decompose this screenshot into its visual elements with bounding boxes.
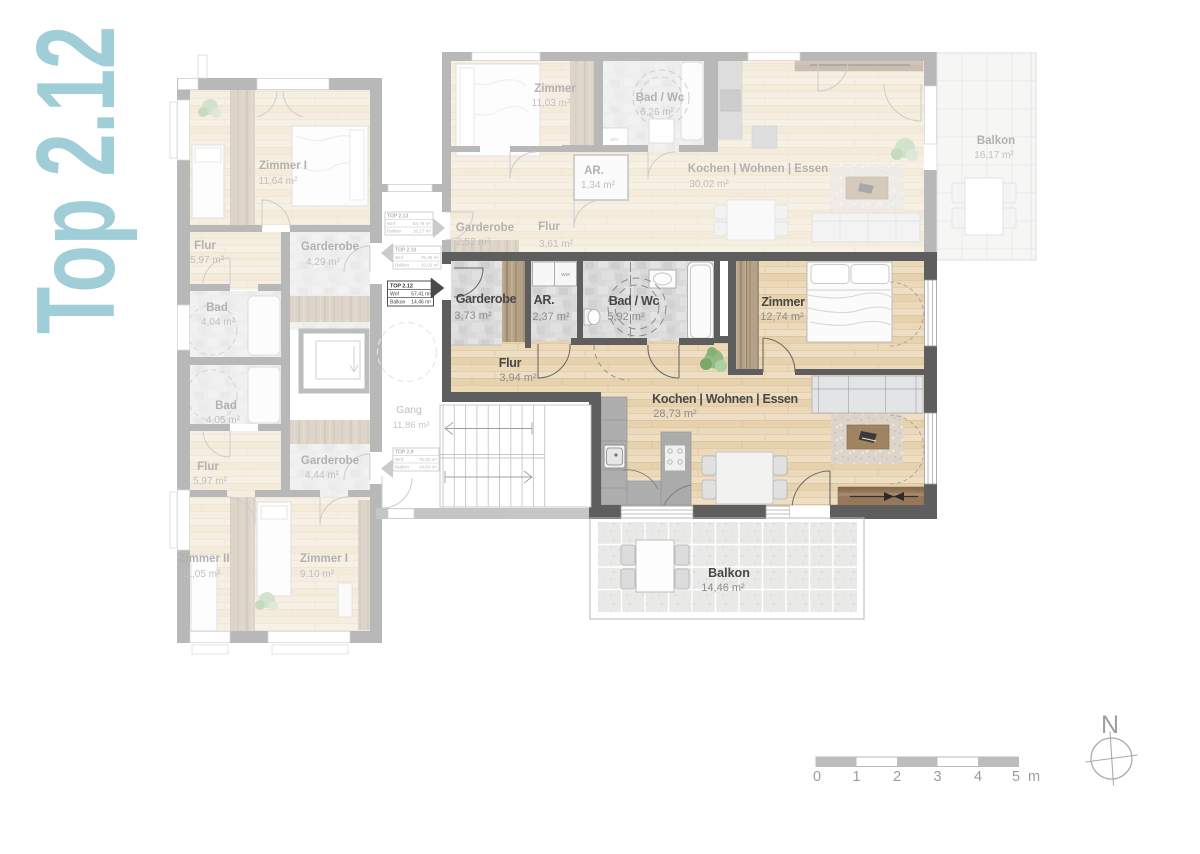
svg-text:Zimmer: Zimmer [534,83,576,95]
svg-text:57,41 m²: 57,41 m² [411,292,431,298]
svg-text:Kochen | Wohnen | Essen: Kochen | Wohnen | Essen [652,392,798,406]
svg-text:28,73 m²: 28,73 m² [653,408,697,420]
svg-text:14,64 m²: 14,64 m² [419,465,438,470]
svg-text:11,03 m²: 11,03 m² [532,98,571,109]
svg-text:Flur: Flur [194,240,216,252]
svg-text:TOP 2.10: TOP 2.10 [395,248,416,254]
svg-text:16,17 m²: 16,17 m² [974,150,1014,161]
svg-text:Balkon: Balkon [395,465,409,470]
svg-text:Balkon: Balkon [708,566,750,580]
svg-text:Bad / Wc: Bad / Wc [636,92,685,104]
svg-text:Balkon: Balkon [390,300,406,306]
svg-text:16,17 m²: 16,17 m² [413,229,432,234]
svg-text:Balkon: Balkon [977,135,1015,147]
svg-text:TOP 2.9: TOP 2.9 [395,450,414,456]
svg-text:Bad: Bad [206,302,228,314]
svg-text:WM: WM [610,137,618,142]
svg-text:75,82 m²: 75,82 m² [419,457,438,462]
svg-text:14,46 m²: 14,46 m² [701,582,745,594]
svg-text:5: 5 [1012,769,1020,785]
svg-text:0: 0 [813,769,821,785]
svg-text:11,86 m²: 11,86 m² [393,420,430,431]
svg-text:5,97 m²: 5,97 m² [190,255,225,266]
svg-text:Bad / Wc: Bad / Wc [609,294,660,308]
svg-text:TOP 2.12: TOP 2.12 [390,284,413,290]
svg-text:4,29 m²: 4,29 m² [306,257,341,268]
svg-text:5,97 m²: 5,97 m² [193,476,228,487]
svg-text:Flur: Flur [197,461,219,473]
svg-text:76,45 m²: 76,45 m² [421,255,440,260]
svg-text:Kochen | Wohnen | Essen: Kochen | Wohnen | Essen [688,163,828,175]
svg-text:m: m [1028,769,1040,785]
svg-text:2: 2 [893,769,901,785]
svg-text:TOP 2.13: TOP 2.13 [387,214,408,220]
svg-text:AR.: AR. [534,293,555,307]
svg-text:54,78 m²: 54,78 m² [413,221,432,226]
svg-text:Zimmer I: Zimmer I [259,160,307,172]
svg-text:4: 4 [974,769,982,785]
svg-text:Balkon: Balkon [387,229,401,234]
svg-text:14,46 m²: 14,46 m² [411,300,431,306]
svg-text:2,52 m²: 2,52 m² [456,237,491,248]
svg-text:Bad: Bad [215,400,237,412]
svg-text:2,37 m²: 2,37 m² [532,311,570,323]
svg-text:1: 1 [852,769,860,785]
svg-text:Balkon: Balkon [395,263,409,268]
svg-text:Flur: Flur [538,221,560,233]
svg-text:AR.: AR. [584,165,604,177]
svg-text:Garderobe: Garderobe [456,222,514,234]
svg-text:15,02 m²: 15,02 m² [421,263,440,268]
svg-text:Gang: Gang [396,404,422,416]
svg-text:6,26 m²: 6,26 m² [640,107,675,118]
svg-text:4,44 m²: 4,44 m² [305,470,340,481]
svg-text:11,64 m²: 11,64 m² [259,176,298,187]
svg-text:Flur: Flur [499,356,522,370]
svg-text:3,73 m²: 3,73 m² [454,310,492,322]
svg-text:3,94 m²: 3,94 m² [499,372,537,384]
svg-text:1,34 m²: 1,34 m² [581,180,616,191]
svg-text:Garderobe: Garderobe [456,292,517,306]
svg-text:Wnf: Wnf [387,221,396,226]
svg-text:Wnf: Wnf [395,255,404,260]
svg-text:Top 2.12: Top 2.12 [14,26,138,334]
svg-text:Zimmer: Zimmer [761,295,805,309]
svg-text:Wnf: Wnf [390,292,400,298]
svg-text:4,05 m²: 4,05 m² [206,415,241,426]
svg-text:Garderobe: Garderobe [301,455,359,467]
svg-text:5,92 m²: 5,92 m² [607,311,645,323]
svg-text:11,05 m²: 11,05 m² [182,569,221,580]
svg-text:WM: WM [561,272,570,278]
svg-text:Garderobe: Garderobe [301,241,359,253]
svg-text:9,10 m²: 9,10 m² [300,569,335,580]
svg-text:Wnf: Wnf [395,457,404,462]
svg-text:30,02 m²: 30,02 m² [689,179,729,190]
svg-text:Zimmer II: Zimmer II [178,553,229,565]
svg-text:3,61 m²: 3,61 m² [539,239,574,250]
svg-text:3: 3 [933,769,941,785]
svg-text:Zimmer I: Zimmer I [300,553,348,565]
svg-text:12,74 m²: 12,74 m² [760,311,804,323]
svg-text:4,04 m²: 4,04 m² [201,317,236,328]
